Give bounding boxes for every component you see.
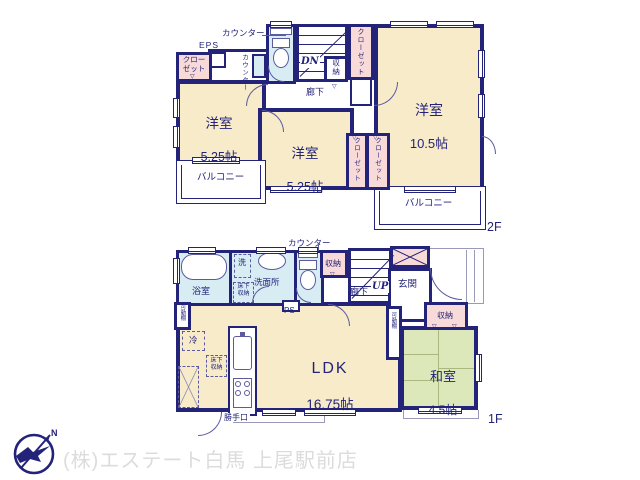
stove-burner (244, 390, 250, 396)
floor1-label: 1F (488, 412, 503, 426)
back-door-arc (198, 412, 222, 436)
tatami-room-label: 和室 4.5帖 (419, 352, 467, 436)
movable-shelf-west-label: 可動棚 (179, 304, 185, 321)
ps-label: PS (284, 306, 295, 315)
swing-marker: ▽ (332, 84, 337, 90)
window (173, 98, 180, 118)
room-west-2f-label: 洋室 5.25帖 (188, 98, 250, 183)
closet-center-2-label: クローゼット (373, 137, 380, 182)
back-door-label: 勝手口 (222, 413, 250, 422)
ldk-label: LDK 16.75帖 (295, 342, 365, 431)
swing-marker: ▽ (330, 272, 335, 278)
underfloor-wet-label: 床下 収納 (233, 284, 254, 298)
porch-step (466, 250, 467, 302)
pantry-space (178, 366, 199, 408)
closet-stairs-label: クローゼット (356, 28, 364, 76)
room-west-name: 洋室 (188, 116, 250, 132)
fridge-label: 冷 (189, 336, 198, 346)
storage-tatami-label: 収納 (437, 311, 453, 320)
kitchen-faucet (240, 332, 245, 336)
window (188, 247, 216, 254)
counter-leader-2f (262, 35, 286, 36)
stove-burner (235, 390, 241, 396)
counter-top-label-2f: カウンター (222, 29, 265, 39)
window (404, 186, 456, 193)
toilet-bowl-2f (273, 48, 289, 68)
porch-step (474, 250, 475, 302)
tatami-size: 4.5帖 (419, 404, 467, 418)
compass-n: N (51, 428, 58, 438)
floor2-label: 2F (487, 220, 502, 234)
kitchen-sink (233, 336, 252, 370)
ldk-size: 16.75帖 (295, 397, 365, 413)
cross-lines (393, 249, 427, 265)
room-east-size: 10.5帖 (398, 137, 460, 152)
counter-top-label-1f: カウンター (288, 239, 331, 249)
toilet-counter-2f (270, 28, 292, 35)
entrance-label: 玄関 (398, 280, 417, 291)
room-center-name: 洋室 (274, 146, 336, 162)
hallway-2f-label: 廊下 (306, 87, 324, 97)
swing-marker: ▽ (190, 74, 195, 80)
movable-shelf-east-label: 可動棚 (390, 312, 396, 329)
bath-label: 浴室 (192, 286, 210, 296)
swing-marker: ▽ (352, 135, 357, 141)
washer-label: 洗 (238, 258, 246, 267)
bathtub (181, 254, 227, 280)
toilet-tank-1f (299, 260, 317, 270)
storage-hall-label: 収納 (325, 259, 341, 268)
window (173, 126, 180, 148)
window (390, 21, 428, 28)
balcony-west-label: バルコニー (197, 173, 244, 184)
swing-marker: ▽ (452, 324, 457, 330)
swing-marker: ▽ (432, 324, 437, 330)
window (270, 21, 292, 28)
cross-lines (179, 367, 198, 407)
window (173, 258, 180, 284)
window (478, 94, 485, 118)
hallway-1f-label: 廊下 (350, 287, 368, 297)
company-name: (株)エステート白馬 上尾駅前店 (63, 444, 358, 473)
room-center-2f-label: 洋室 5.25帖 (274, 128, 336, 213)
stove-burner (244, 381, 250, 387)
counter-side-label: カウンター (240, 54, 247, 92)
underfloor-ldk-label: 床下 収納 (206, 358, 227, 372)
eps-box (210, 52, 226, 68)
window (475, 354, 482, 382)
washroom-sink (258, 252, 286, 270)
shoe-cabinet (390, 246, 430, 268)
washroom-label: 洗面所 (254, 278, 280, 288)
window-arc-east (482, 136, 496, 154)
closet-topleft-label: クロー ゼット (178, 56, 210, 73)
room-center-size: 5.25帖 (274, 180, 336, 194)
closet-center-1-label: クローゼット (352, 137, 359, 182)
room-east-name: 洋室 (398, 102, 460, 118)
ldk-name: LDK (295, 360, 365, 378)
stove-burner (235, 381, 241, 387)
window (256, 247, 286, 254)
counter-box-2f (252, 54, 266, 78)
swing-marker: ▽ (373, 135, 378, 141)
bird-silhouette (16, 446, 50, 463)
room-east-2f-label: 洋室 10.5帖 (398, 84, 460, 170)
window (436, 21, 474, 28)
room-west-size: 5.25帖 (188, 150, 250, 164)
toilet-bowl-1f (300, 270, 316, 290)
eps-label: EPS (199, 41, 219, 51)
stairs-up-label: UP (371, 281, 389, 293)
window (262, 409, 296, 416)
toilet-tank-2f (272, 38, 290, 48)
door-recess-2f (350, 78, 372, 106)
window (478, 50, 485, 78)
company-logo-compass: N (10, 426, 60, 478)
tatami-name: 和室 (419, 370, 467, 385)
floor-plan-canvas: DN 収納 クローゼット クロー ゼット EPS カウンター カウンター 廊下 … (0, 0, 640, 480)
stairs-dn-label: DN (300, 56, 320, 68)
storage-2f-label: 収納 (331, 59, 340, 76)
balcony-east-label: バルコニー (405, 199, 452, 210)
